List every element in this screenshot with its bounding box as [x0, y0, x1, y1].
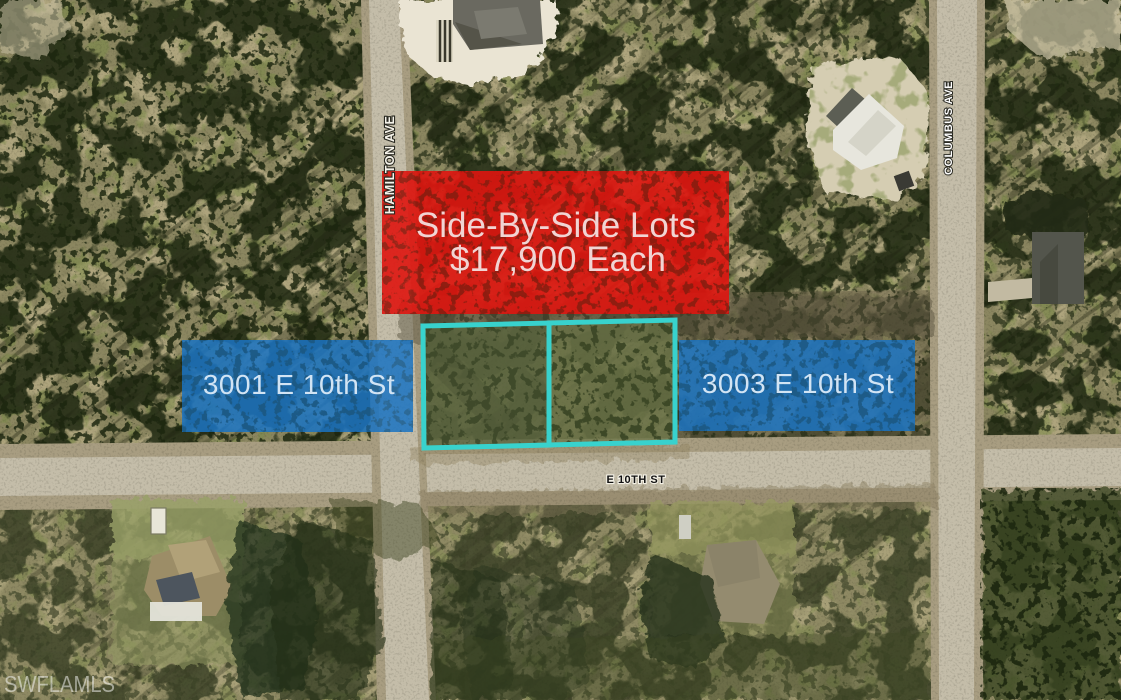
svg-text:SWFLAMLS: SWFLAMLS [4, 671, 115, 697]
svg-text:3003 E 10th St: 3003 E 10th St [702, 368, 894, 399]
svg-text:COLUMBUS AVE: COLUMBUS AVE [943, 81, 955, 175]
svg-text:$17,900 Each: $17,900 Each [450, 240, 666, 279]
svg-text:3001 E 10th St: 3001 E 10th St [203, 369, 395, 400]
svg-text:E 10TH ST: E 10TH ST [607, 474, 666, 486]
svg-text:HAMILTON AVE: HAMILTON AVE [383, 116, 397, 215]
